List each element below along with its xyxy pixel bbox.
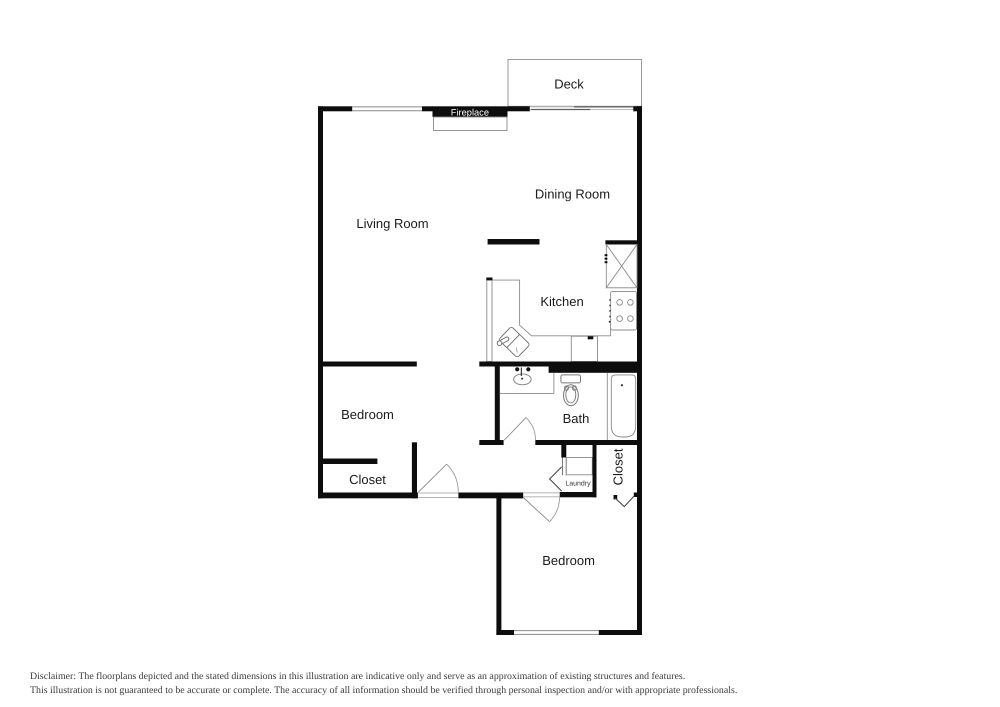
svg-text:This illustration is not guara: This illustration is not guaranteed to b… <box>30 685 737 696</box>
svg-text:Disclaimer: The floorplans dep: Disclaimer: The floorplans depicted and … <box>30 671 685 682</box>
